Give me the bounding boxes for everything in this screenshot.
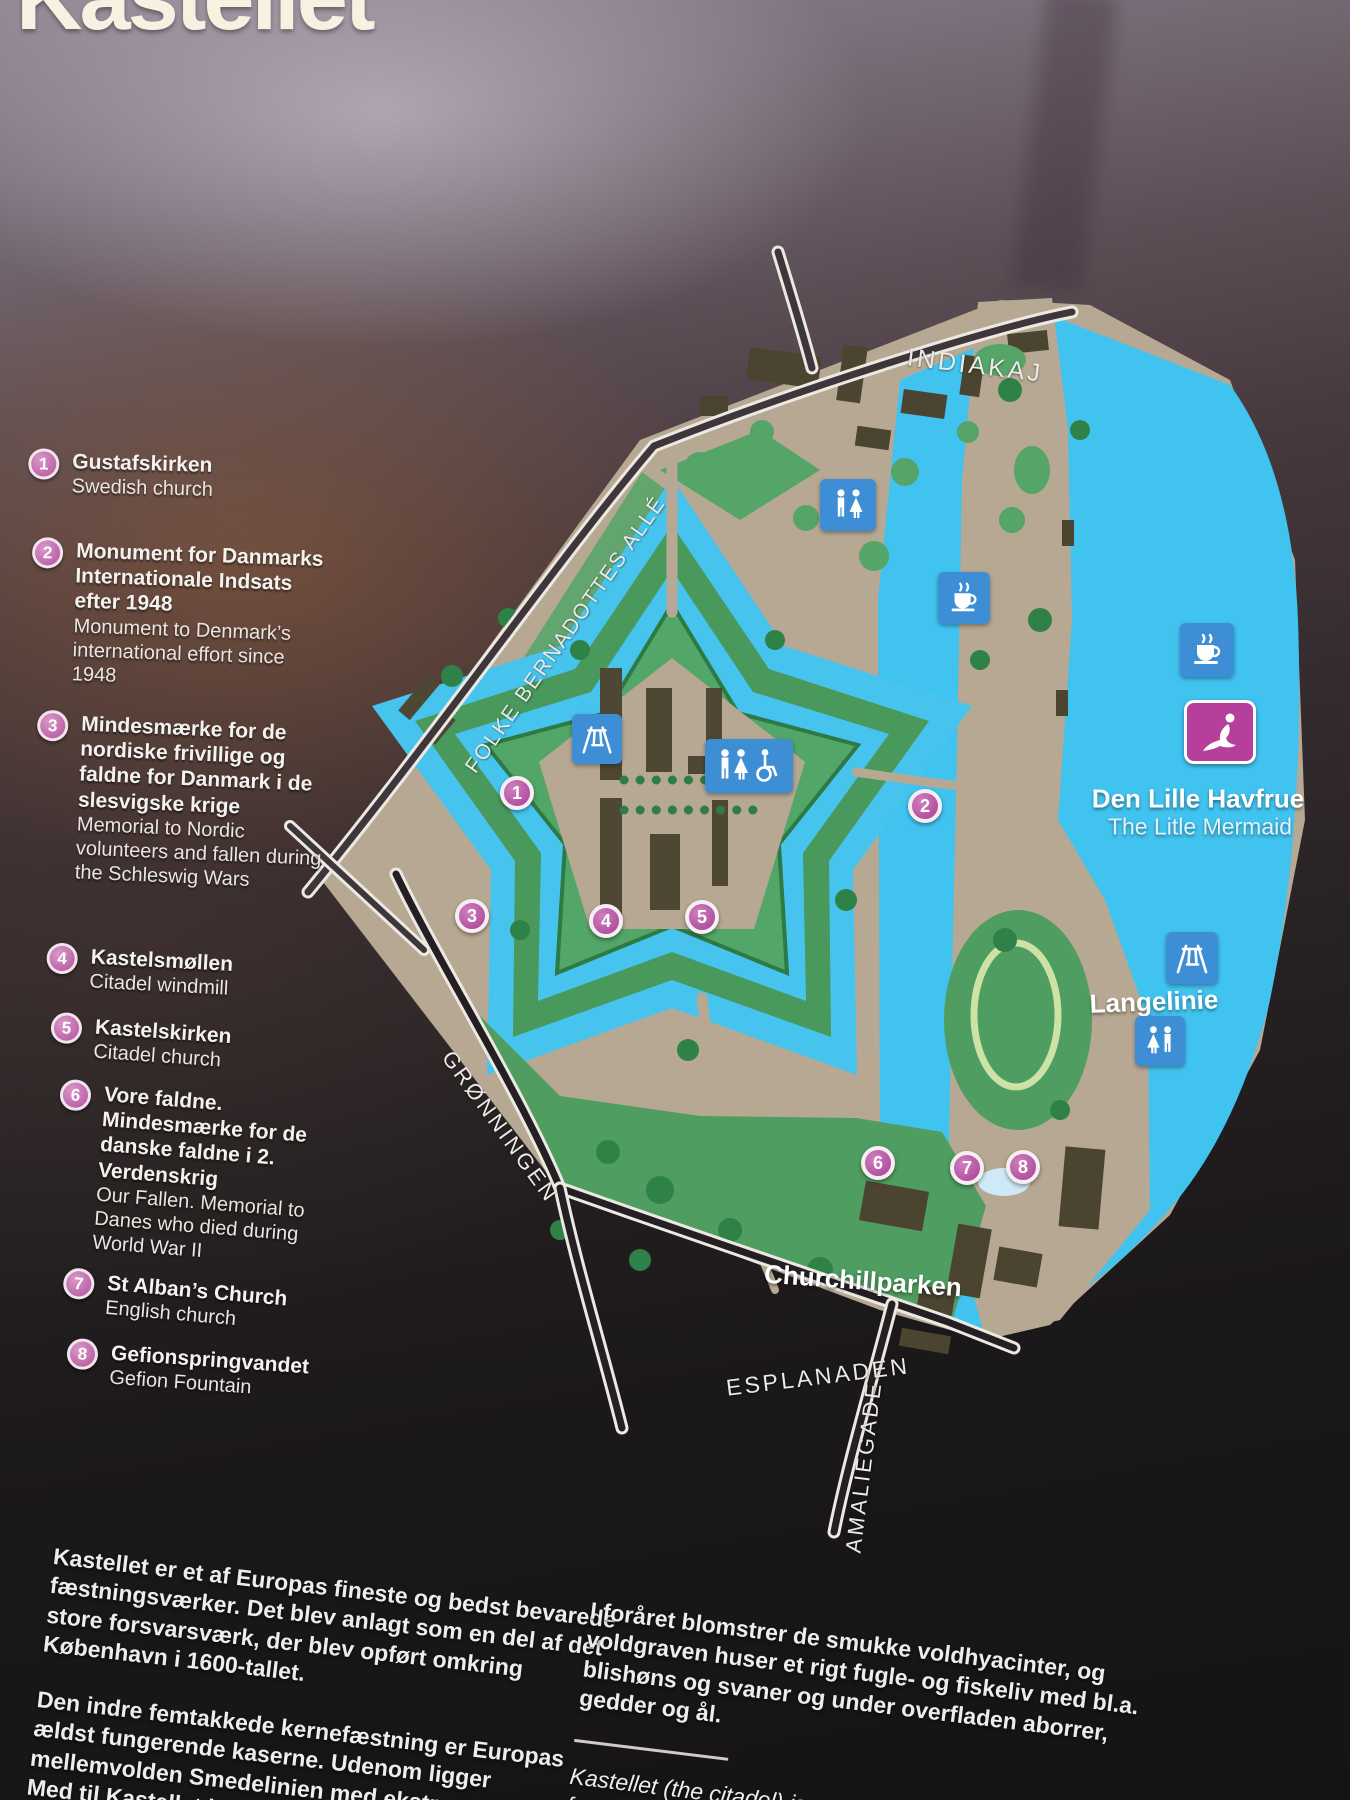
legend-number-badge: 1 — [28, 448, 60, 480]
legend-danish-label: Monument for Danmarks Internationale Ind… — [74, 538, 331, 622]
playground-icon — [1166, 932, 1218, 984]
mermaid-statue-icon — [1184, 700, 1256, 764]
legend-number-badge: 7 — [62, 1267, 96, 1301]
legend-item-6: 6 Vore faldne. Mindesmærke for de danske… — [48, 1078, 361, 1274]
legend-number-badge: 8 — [66, 1338, 99, 1371]
map-marker-7: 7 — [950, 1151, 984, 1185]
legend-item-3: 3 Mindesmærke for de nordiske frivillige… — [30, 710, 337, 896]
map-marker-2: 2 — [908, 789, 942, 823]
label-the-little-mermaid: The Litle Mermaid — [1108, 814, 1292, 841]
sign-photo: Kastellet — [0, 0, 1350, 1800]
legend-danish-label: Mindesmærke for de nordiske frivillige o… — [77, 711, 336, 823]
legend-number-badge: 6 — [59, 1078, 92, 1111]
accessible-toilets-icon — [705, 739, 793, 793]
toilets-icon — [1135, 1016, 1185, 1066]
legend-number-badge: 3 — [37, 710, 69, 742]
cafe-icon — [938, 572, 990, 624]
legend-english-label: Memorial to Nordic volunteers and fallen… — [74, 812, 332, 895]
cafe-icon — [1180, 623, 1234, 677]
kastellet-map — [0, 0, 1350, 1800]
legend-number-badge: 5 — [50, 1012, 83, 1045]
playground-icon — [572, 714, 622, 764]
legend-english-label: Monument to Denmark’s international effo… — [71, 614, 328, 695]
legend-number-badge: 4 — [46, 942, 79, 975]
map-marker-6: 6 — [861, 1146, 895, 1180]
map-marker-5: 5 — [685, 900, 719, 934]
footer-divider — [574, 1739, 728, 1761]
map-marker-4: 4 — [589, 904, 623, 938]
label-den-lille-havfrue: Den Lille Havfrue — [1092, 784, 1304, 815]
legend-item-2: 2 Monument for Danmarks Internationale I… — [28, 537, 333, 695]
map-marker-1: 1 — [500, 776, 534, 810]
legend-number-badge: 2 — [32, 537, 64, 569]
legend-item-1: 1 Gustafskirken Swedish church — [27, 448, 328, 505]
label-langelinie: Langelinie — [1089, 984, 1219, 1019]
legend-danish-label: Vore faldne. Mindesmærke for de danske f… — [97, 1082, 359, 1202]
map-marker-3: 3 — [455, 899, 489, 933]
toilets-icon — [820, 479, 876, 531]
map-marker-8: 8 — [1006, 1150, 1040, 1184]
